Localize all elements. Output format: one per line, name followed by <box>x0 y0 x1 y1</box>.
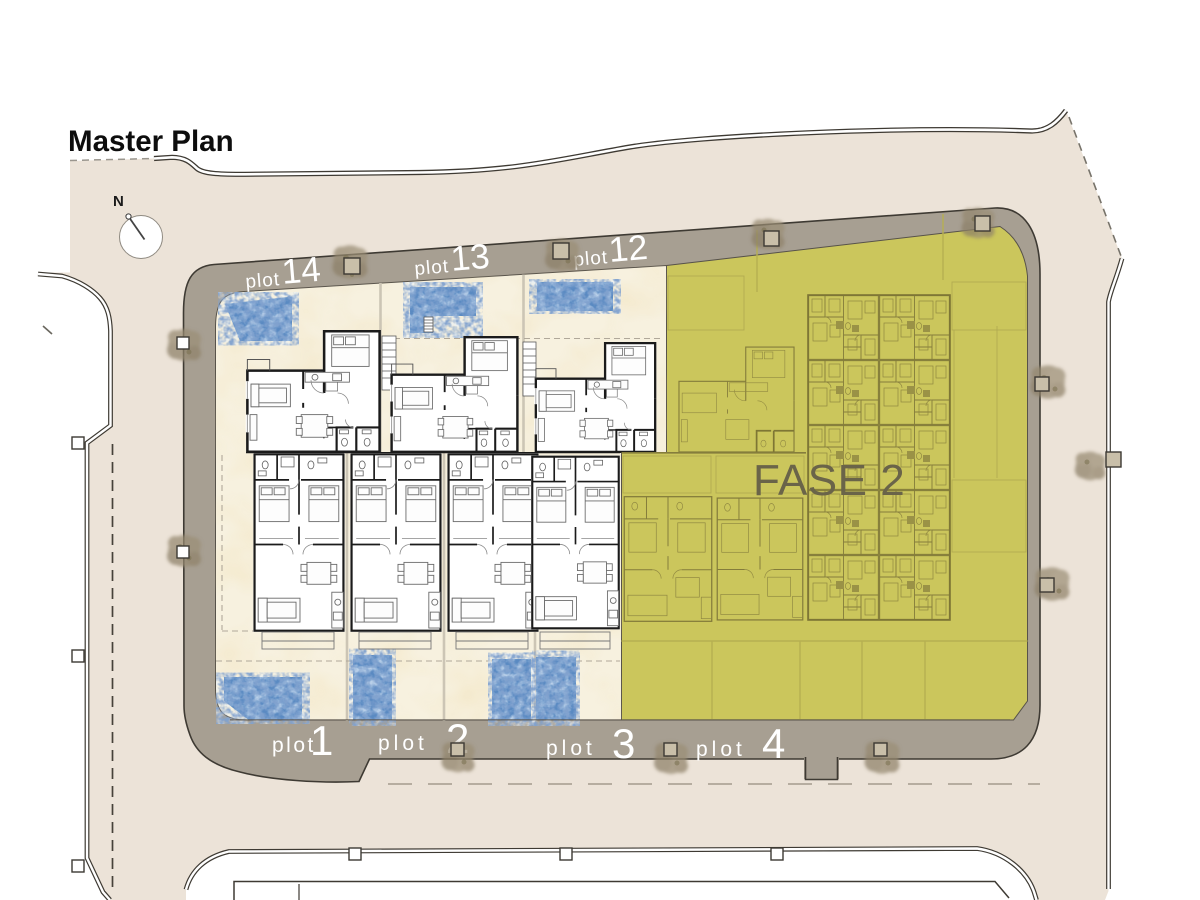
svg-text:plot: plot <box>245 269 281 293</box>
svg-text:N: N <box>113 193 124 210</box>
svg-text:Master Plan: Master Plan <box>68 125 234 158</box>
svg-text:plot: plot <box>696 738 746 761</box>
svg-text:FASE 2: FASE 2 <box>753 456 905 505</box>
svg-text:1: 1 <box>310 717 333 764</box>
svg-text:14: 14 <box>280 250 322 292</box>
svg-text:3: 3 <box>612 720 635 767</box>
svg-text:plot: plot <box>414 256 450 280</box>
svg-text:plot: plot <box>546 737 596 760</box>
svg-text:13: 13 <box>449 237 491 279</box>
svg-text:4: 4 <box>762 720 785 767</box>
svg-text:plot: plot <box>378 732 428 755</box>
svg-text:12: 12 <box>607 228 649 270</box>
